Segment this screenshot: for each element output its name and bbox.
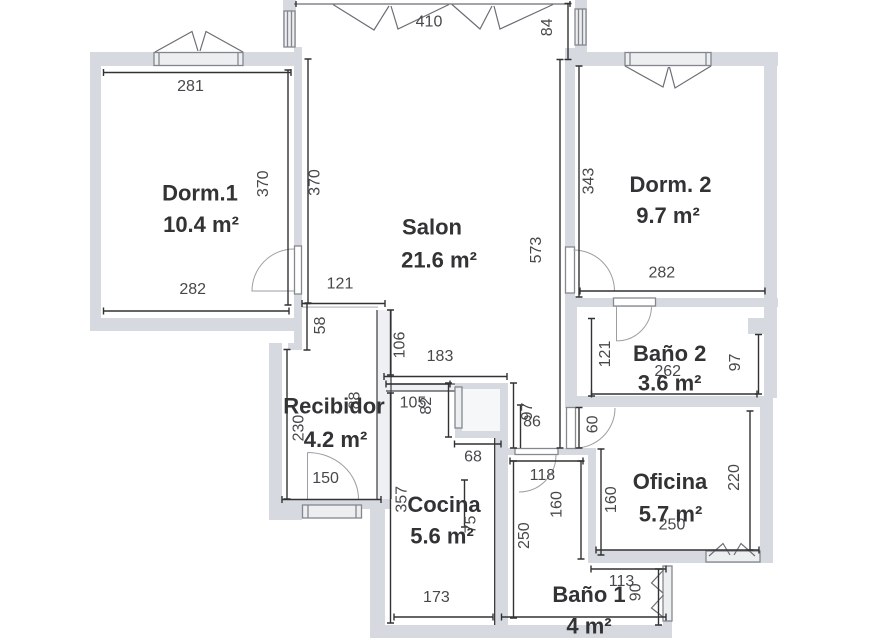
svg-text:343: 343 [581, 168, 598, 195]
svg-text:5.6 m²: 5.6 m² [410, 524, 474, 549]
svg-text:Dorm.1: Dorm.1 [162, 181, 238, 206]
svg-text:160: 160 [603, 486, 620, 513]
svg-text:21.6 m²: 21.6 m² [401, 248, 477, 273]
svg-text:Salon: Salon [402, 215, 462, 240]
svg-text:282: 282 [648, 265, 675, 282]
svg-text:86: 86 [523, 414, 541, 431]
svg-text:250: 250 [516, 522, 533, 549]
svg-text:Cocina: Cocina [407, 492, 481, 517]
svg-text:58: 58 [312, 317, 329, 335]
svg-text:281: 281 [177, 78, 204, 95]
svg-text:121: 121 [327, 276, 354, 293]
svg-text:3.6 m²: 3.6 m² [638, 371, 702, 396]
svg-text:4 m²: 4 m² [566, 614, 611, 639]
svg-text:220: 220 [726, 464, 743, 491]
svg-text:84: 84 [539, 18, 556, 36]
svg-text:Baño 2: Baño 2 [633, 341, 706, 366]
svg-text:10.4 m²: 10.4 m² [163, 212, 239, 237]
svg-text:410: 410 [416, 14, 443, 31]
svg-text:121: 121 [597, 341, 614, 368]
svg-text:106: 106 [392, 332, 409, 359]
svg-text:Baño 1: Baño 1 [552, 582, 625, 607]
svg-text:5.7 m²: 5.7 m² [639, 502, 703, 527]
svg-text:173: 173 [423, 589, 450, 606]
svg-text:370: 370 [255, 170, 272, 197]
svg-text:118: 118 [530, 467, 556, 484]
svg-text:183: 183 [427, 348, 454, 365]
svg-text:97: 97 [727, 354, 744, 372]
svg-text:Oficina: Oficina [633, 469, 708, 494]
svg-text:573: 573 [528, 237, 545, 264]
svg-text:4.2 m²: 4.2 m² [304, 427, 368, 452]
svg-text:90: 90 [628, 583, 645, 601]
svg-text:Recibidor: Recibidor [283, 394, 385, 419]
svg-text:60: 60 [584, 415, 601, 433]
svg-text:282: 282 [179, 281, 206, 298]
svg-text:370: 370 [307, 169, 324, 196]
svg-text:82: 82 [418, 397, 435, 415]
svg-text:150: 150 [312, 470, 339, 487]
svg-text:160: 160 [549, 491, 566, 518]
svg-text:9.7 m²: 9.7 m² [636, 203, 700, 228]
svg-text:68: 68 [464, 449, 482, 466]
svg-text:Dorm. 2: Dorm. 2 [630, 172, 712, 197]
